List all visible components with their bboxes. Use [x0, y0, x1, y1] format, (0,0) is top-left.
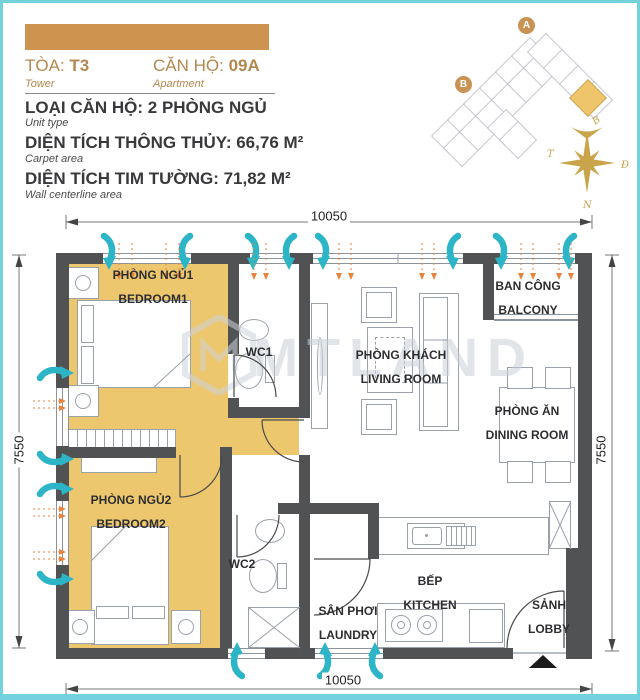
- wall-segment: [191, 253, 250, 264]
- burner-icon: [423, 621, 431, 629]
- wall-segment: [56, 565, 69, 659]
- wall-segment: [56, 648, 228, 659]
- wc1-label: WC1: [246, 340, 273, 364]
- lamp-icon: [72, 619, 88, 635]
- living-label: PHÒNG KHÁCH LIVING ROOM: [356, 343, 447, 391]
- dim-left: 7550: [12, 433, 27, 468]
- wall-segment: [56, 447, 176, 458]
- bed2-pillow: [132, 606, 165, 619]
- lamp-icon: [75, 393, 91, 409]
- bed1-pillow: [81, 305, 94, 343]
- kitchen-label-vn: BẾP: [403, 569, 456, 593]
- balcony-label-en: BALCONY: [495, 298, 560, 322]
- apartment-line: CĂN HỘ: 09A: [153, 56, 260, 76]
- wall-segment: [368, 503, 379, 559]
- shaft-box: [248, 607, 300, 648]
- dining-label-en: DINING ROOM: [486, 423, 569, 447]
- window: [313, 253, 463, 264]
- compass-south-label: N: [582, 200, 593, 211]
- bedroom2-door-floor: [176, 447, 220, 458]
- kitchen-label: BẾP KITCHEN: [403, 569, 456, 617]
- tower-line: TÒA: T3: [25, 56, 89, 76]
- bedroom2-label-en: BEDROOM2: [91, 512, 172, 536]
- drain-board: [446, 526, 476, 546]
- centerline-area-line: DIỆN TÍCH TIM TƯỜNG: 71,82 M²: [25, 169, 291, 189]
- bed2: [91, 526, 169, 645]
- floorplan-page: TÒA: T3 Tower CĂN HỘ: 09A Apartment LOẠI…: [0, 0, 640, 700]
- dining-chair: [545, 367, 571, 389]
- entrance-threshold: [513, 652, 566, 654]
- dining-label-vn: PHÒNG ĂN: [486, 399, 569, 423]
- carpet-area-line: DIỆN TÍCH THÔNG THỦY: 66,76 M²: [25, 133, 303, 153]
- site-highlighted-unit: [570, 80, 607, 117]
- tower-value: T3: [69, 56, 89, 75]
- wall-segment: [383, 648, 513, 659]
- lobby-label-vn: SẢNH: [528, 593, 570, 617]
- armchair-cushion: [366, 404, 392, 430]
- apartment-sub: Apartment: [153, 78, 204, 90]
- carpet-area-sub: Carpet area: [25, 153, 83, 165]
- tower-label: TÒA:: [25, 56, 65, 75]
- bedroom2-label-vn: PHÒNG NGỦ2: [91, 488, 172, 512]
- wall-segment: [290, 253, 313, 264]
- lobby-label: SẢNH LOBBY: [528, 593, 570, 641]
- dim-bottom: 10050: [322, 673, 364, 688]
- site-plan-sketch: [432, 34, 613, 167]
- dining-chair: [507, 461, 533, 483]
- wall-segment: [299, 455, 310, 659]
- balcony-label-vn: BAN CÔNG: [495, 274, 560, 298]
- window: [56, 501, 69, 565]
- site-marker-a: A: [518, 17, 535, 34]
- bedroom1-label: PHÒNG NGỦ1 BEDROOM1: [113, 263, 194, 311]
- window: [250, 253, 290, 264]
- centerline-area-sub: Wall centerline area: [25, 189, 122, 201]
- window: [228, 648, 265, 659]
- compass-icon: B T Đ N: [547, 114, 629, 211]
- compass-north-wing-icon: [571, 127, 603, 139]
- lamp-icon: [75, 275, 91, 291]
- dining-chair: [545, 461, 571, 483]
- header-accent-bar: [25, 24, 269, 50]
- laundry-label-vn: SÂN PHƠI: [319, 599, 378, 623]
- tower-sub: Tower: [25, 78, 55, 90]
- bed1-pillow: [81, 346, 94, 384]
- lamp-icon: [178, 619, 194, 635]
- armchair-cushion: [366, 292, 392, 318]
- shaft-box: [549, 501, 571, 549]
- bed1: [77, 300, 191, 388]
- wall-segment: [228, 407, 310, 418]
- laundry-label-en: LAUNDRY: [319, 623, 378, 647]
- dim-top: 10050: [308, 209, 350, 224]
- dim-right: 7550: [594, 433, 609, 468]
- wc2-toilet-tank: [277, 563, 287, 589]
- bedroom1-label-vn: PHÒNG NGỦ1: [113, 263, 194, 287]
- wall-segment: [463, 253, 500, 264]
- apartment-label: CĂN HỘ:: [153, 56, 224, 75]
- laundry-label: SÂN PHƠI LAUNDRY: [319, 599, 378, 647]
- unit-type-line: LOẠI CĂN HỘ: 2 PHÒNG NGỦ: [25, 98, 267, 118]
- apartment-value: 09A: [229, 56, 260, 75]
- wc2-label: WC2: [229, 552, 256, 576]
- window: [500, 253, 575, 264]
- bed2-pillow: [96, 606, 129, 619]
- wall-segment: [578, 253, 592, 659]
- burner-icon: [397, 621, 405, 629]
- site-marker-b: B: [455, 76, 472, 93]
- wc2-sink: [255, 519, 285, 543]
- bedroom2-label: PHÒNG NGỦ2 BEDROOM2: [91, 488, 172, 536]
- compass-west-label: T: [547, 149, 555, 160]
- living-label-vn: PHÒNG KHÁCH: [356, 343, 447, 367]
- faucet-icon: [425, 534, 428, 537]
- entrance-arrow-icon: [529, 655, 557, 668]
- fridge: [469, 609, 503, 643]
- window: [56, 388, 69, 446]
- living-label-en: LIVING ROOM: [356, 367, 447, 391]
- compass-north-label: B: [590, 114, 603, 128]
- lobby-label-en: LOBBY: [528, 617, 570, 641]
- header-divider: [25, 93, 275, 94]
- kitchen-label-en: KITCHEN: [403, 593, 456, 617]
- compass-east-label: Đ: [620, 160, 629, 171]
- unit-type-sub: Unit type: [25, 117, 68, 129]
- dining-label: PHÒNG ĂN DINING ROOM: [486, 399, 569, 447]
- window: [315, 648, 383, 659]
- balcony-label: BAN CÔNG BALCONY: [495, 274, 560, 322]
- wall-segment: [483, 264, 494, 320]
- wall-segment: [278, 503, 368, 514]
- bedroom1-label-en: BEDROOM1: [113, 287, 194, 311]
- wall-segment: [56, 253, 69, 388]
